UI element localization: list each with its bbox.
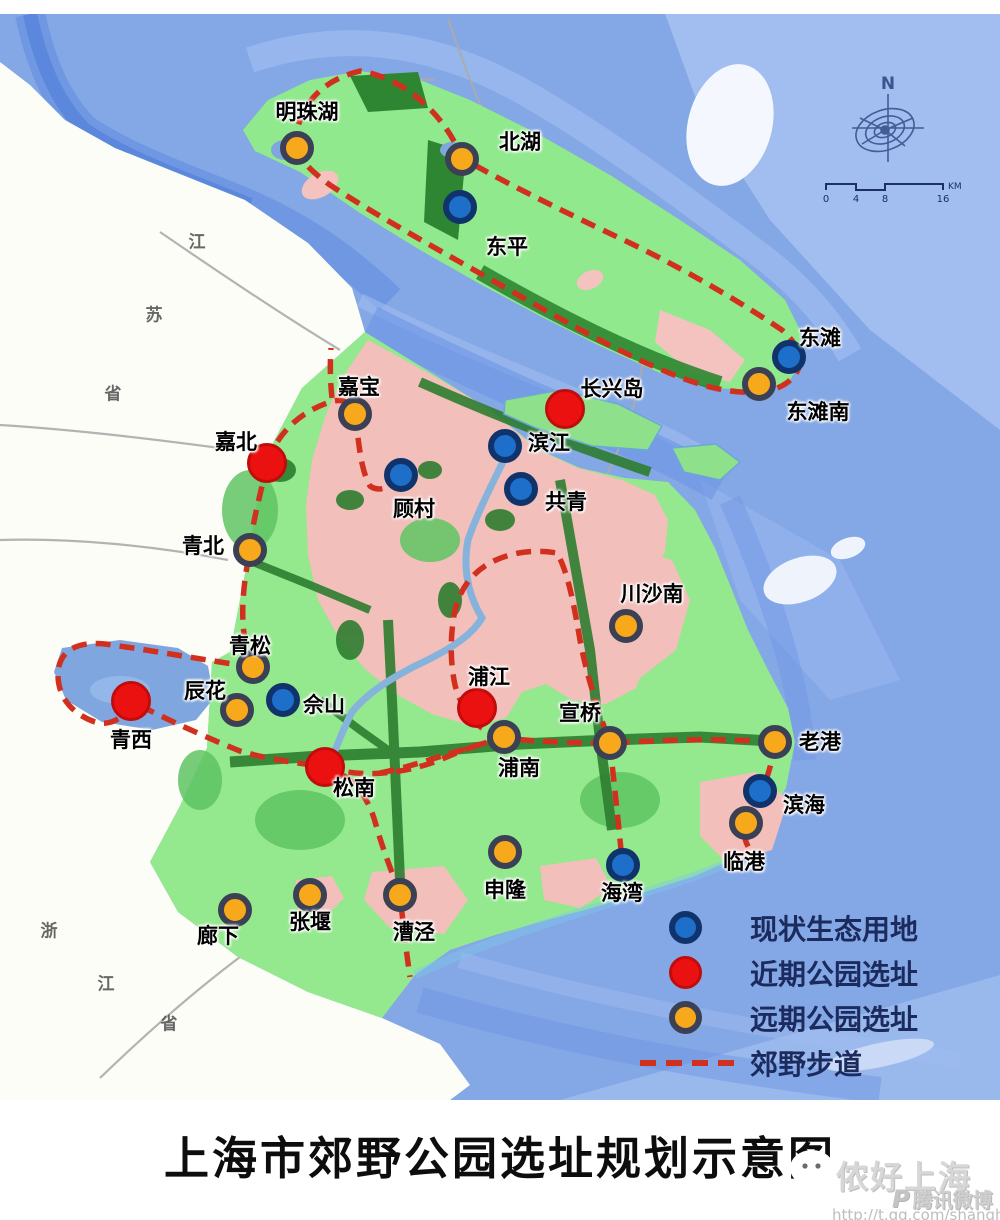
site-label: 滨江 xyxy=(528,427,570,457)
site-marker-long_term xyxy=(488,835,522,869)
site-marker-long_term xyxy=(445,142,479,176)
site-label: 老港 xyxy=(799,726,841,756)
site-marker-long_term xyxy=(593,726,627,760)
site-label: 滨海 xyxy=(783,789,825,819)
site-label: 浦江 xyxy=(468,661,510,691)
site-label: 共青 xyxy=(545,486,587,516)
site-label: 嘉宝 xyxy=(338,371,380,401)
site-marker-long_term xyxy=(609,609,643,643)
site-label: 东滩 xyxy=(799,322,841,352)
site-label: 辰花 xyxy=(184,675,226,705)
province-label-char: 苏 xyxy=(146,301,163,326)
legend-long-term-label: 远期公园选址 xyxy=(750,998,918,1038)
site-marker-long_term xyxy=(729,806,763,840)
site-label: 宣桥 xyxy=(559,697,601,727)
site-label: 顾村 xyxy=(393,493,435,523)
legend-long-term-dot xyxy=(669,1001,702,1034)
site-marker-existing xyxy=(504,472,538,506)
site-label: 青北 xyxy=(182,530,224,560)
province-label-char: 浙 xyxy=(41,917,58,942)
site-marker-long_term xyxy=(742,367,776,401)
site-marker-near_term xyxy=(545,389,585,429)
legend-row-long-term: 远期公园选址 xyxy=(640,995,970,1040)
site-marker-long_term xyxy=(338,397,372,431)
site-label: 张堰 xyxy=(289,906,331,936)
legend-existing-label: 现状生态用地 xyxy=(750,908,918,948)
legend-trail-label: 郊野步道 xyxy=(750,1043,862,1083)
site-label: 佘山 xyxy=(303,689,345,719)
legend-near-term-label: 近期公园选址 xyxy=(750,953,918,993)
site-label: 明珠湖 xyxy=(276,96,339,126)
site-marker-existing xyxy=(384,458,418,492)
province-label-char: 江 xyxy=(98,970,115,995)
site-label: 川沙南 xyxy=(621,578,684,608)
site-marker-long_term xyxy=(233,533,267,567)
site-label: 松南 xyxy=(333,772,375,802)
site-marker-existing xyxy=(488,429,522,463)
watermark-url: http://t.qq.com/shanghaicity xyxy=(832,1206,1000,1220)
watermark: 侬好上海 P腾讯微博 http://t.qq.com/shanghaicity xyxy=(780,1140,1000,1220)
site-label: 海湾 xyxy=(601,877,643,907)
map-page: N 0 4 8 16 KM 明珠湖北湖东平东滩东滩南嘉宝嘉北长兴岛滨江顾村共青青… xyxy=(0,0,1000,1220)
site-marker-near_term xyxy=(111,681,151,721)
site-label: 东滩南 xyxy=(787,396,850,426)
province-label-char: 省 xyxy=(161,1010,178,1035)
site-label: 东平 xyxy=(486,231,528,261)
site-label: 北湖 xyxy=(499,126,541,156)
site-marker-long_term xyxy=(280,131,314,165)
site-label: 长兴岛 xyxy=(581,373,644,403)
site-marker-long_term xyxy=(758,725,792,759)
site-marker-existing xyxy=(743,774,777,808)
legend-near-term-dot xyxy=(669,956,702,989)
map-legend: 现状生态用地 近期公园选址 远期公园选址 郊野步道 xyxy=(640,905,970,1085)
site-label: 廊下 xyxy=(197,920,239,950)
site-label: 青松 xyxy=(229,630,271,660)
site-marker-near_term xyxy=(457,688,497,728)
legend-row-trail: 郊野步道 xyxy=(640,1040,970,1085)
chat-bubble-icon xyxy=(788,1148,836,1194)
site-label: 浦南 xyxy=(498,752,540,782)
site-label: 临港 xyxy=(723,846,765,876)
province-label-char: 省 xyxy=(105,380,122,405)
site-label: 申隆 xyxy=(484,874,526,904)
site-marker-existing xyxy=(443,190,477,224)
legend-trail-dash xyxy=(640,1060,735,1066)
site-label: 漕泾 xyxy=(393,916,435,946)
site-marker-long_term xyxy=(383,878,417,912)
site-marker-existing xyxy=(266,683,300,717)
legend-row-near-term: 近期公园选址 xyxy=(640,950,970,995)
province-label-char: 江 xyxy=(189,228,206,253)
legend-existing-dot xyxy=(669,911,702,944)
site-label: 嘉北 xyxy=(215,426,257,456)
legend-row-existing: 现状生态用地 xyxy=(640,905,970,950)
site-label: 青西 xyxy=(110,724,152,754)
site-marker-long_term xyxy=(487,720,521,754)
